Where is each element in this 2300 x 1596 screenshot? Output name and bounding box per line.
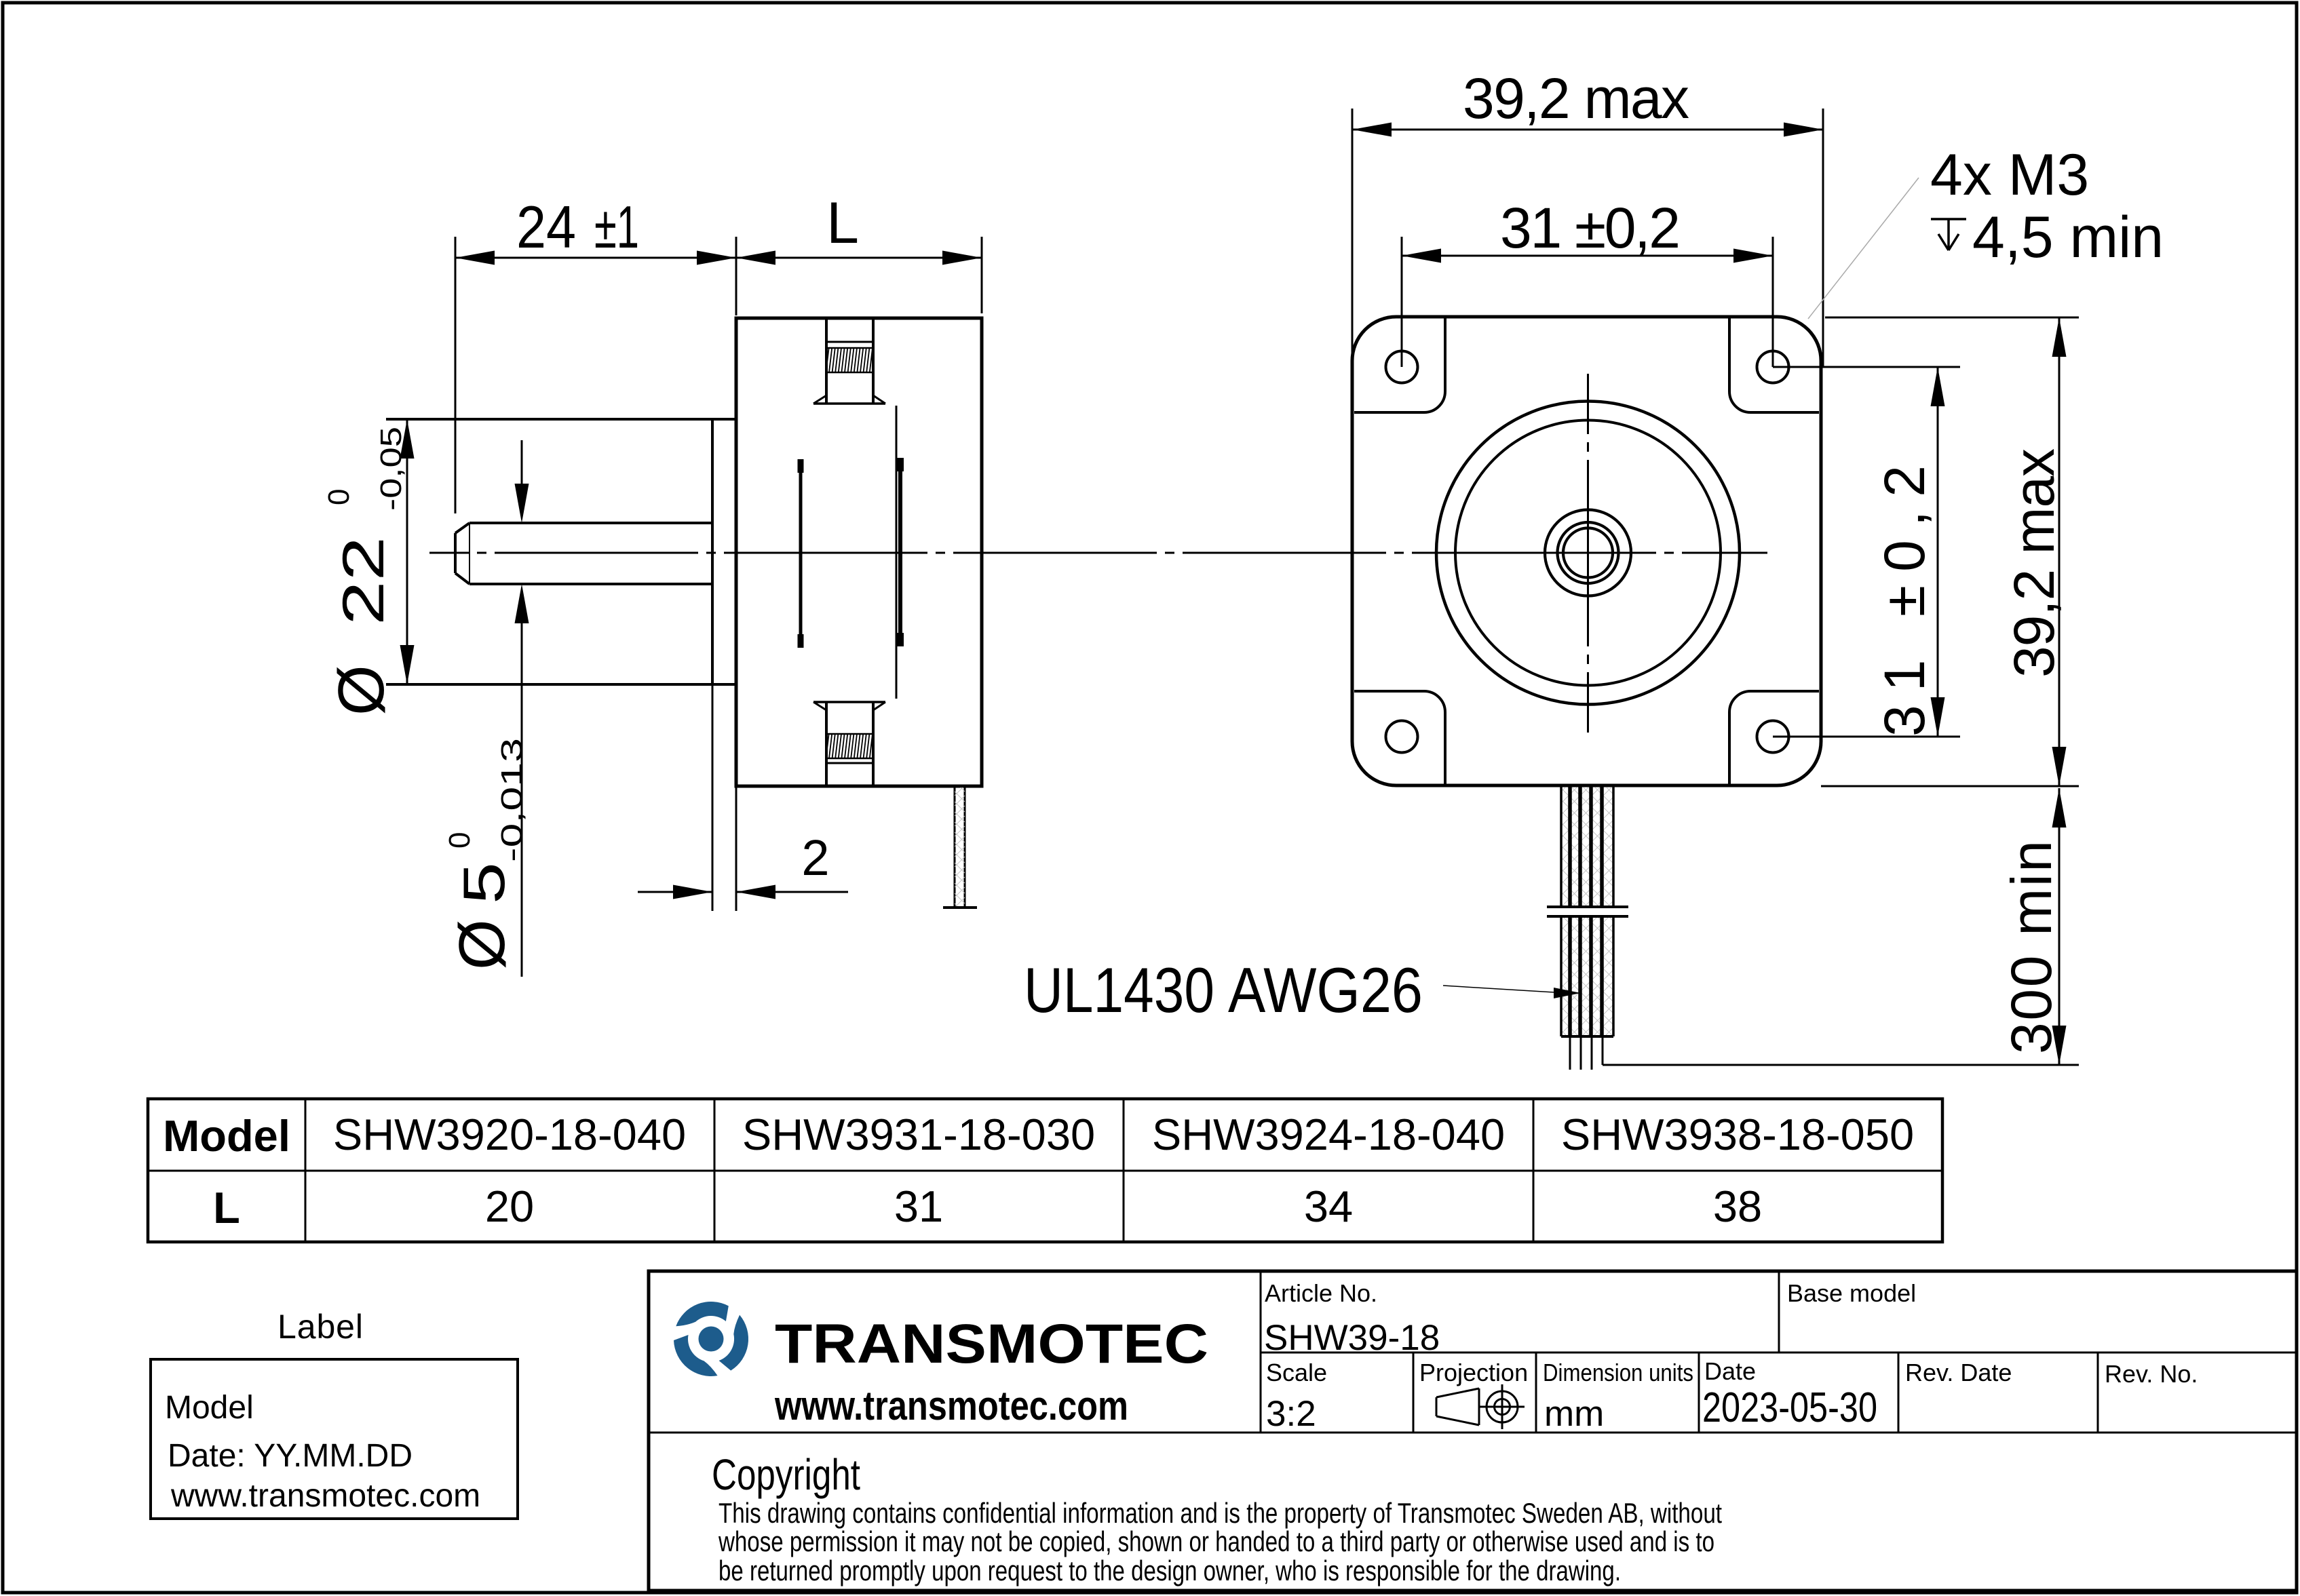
svg-text:22: 22 <box>331 537 396 625</box>
svg-text:Article No.: Article No. <box>1265 1279 1377 1307</box>
svg-text:SHW3931-18-030: SHW3931-18-030 <box>742 1110 1095 1159</box>
svg-text:3:2: 3:2 <box>1266 1394 1316 1434</box>
svg-text:SHW39-18: SHW39-18 <box>1264 1318 1440 1358</box>
svg-text:TRANSMOTEC: TRANSMOTEC <box>775 1313 1208 1375</box>
svg-text:Projection: Projection <box>1419 1359 1528 1386</box>
svg-text:34: 34 <box>1304 1182 1353 1231</box>
svg-text:SHW3924-18-040: SHW3924-18-040 <box>1152 1110 1505 1159</box>
svg-text:2: 2 <box>801 830 829 886</box>
svg-text:L: L <box>213 1183 240 1232</box>
svg-text:Model: Model <box>165 1390 254 1426</box>
svg-text:Base model: Base model <box>1787 1279 1916 1307</box>
svg-text:L: L <box>826 191 859 256</box>
svg-text:4,5 min: 4,5 min <box>1972 205 2164 270</box>
svg-text:Label: Label <box>277 1308 363 1346</box>
svg-text:www.transmotec.com: www.transmotec.com <box>774 1383 1128 1428</box>
svg-text:Model: Model <box>163 1111 290 1161</box>
svg-text:20: 20 <box>485 1182 534 1231</box>
svg-text:0: 0 <box>322 489 356 505</box>
svg-text:UL1430: UL1430 <box>1024 954 1214 1026</box>
svg-text:0: 0 <box>443 832 476 849</box>
svg-text:Ø: Ø <box>446 919 518 970</box>
svg-text:Ø: Ø <box>325 665 398 716</box>
svg-text:Rev. No.: Rev. No. <box>2105 1360 2198 1388</box>
svg-text:Copyright: Copyright <box>712 1450 860 1499</box>
svg-text:-0,013: -0,013 <box>495 738 529 862</box>
svg-text:This drawing contains confiden: This drawing contains confidential infor… <box>718 1497 1722 1529</box>
svg-text:mm: mm <box>1544 1394 1604 1434</box>
svg-text:-0,05: -0,05 <box>375 427 408 511</box>
svg-text:39,2 max: 39,2 max <box>1463 66 1689 130</box>
svg-text:AWG26: AWG26 <box>1228 954 1423 1026</box>
svg-text:SHW3920-18-040: SHW3920-18-040 <box>333 1110 686 1159</box>
svg-text:SHW3938-18-050: SHW3938-18-050 <box>1561 1110 1914 1159</box>
svg-text:Rev. Date: Rev. Date <box>1905 1359 2012 1386</box>
svg-text:Date: YY.MM.DD: Date: YY.MM.DD <box>168 1438 413 1474</box>
svg-text:Date: Date <box>1704 1357 1756 1385</box>
svg-text:24: 24 <box>516 193 576 260</box>
svg-text:2023-05-30: 2023-05-30 <box>1702 1384 1877 1431</box>
svg-text:31 ±0,2: 31 ±0,2 <box>1500 196 1681 260</box>
svg-text:39,2 max: 39,2 max <box>2002 448 2066 678</box>
svg-text:±1: ±1 <box>594 193 639 260</box>
svg-text:be returned promptly upon requ: be returned promptly upon request to the… <box>718 1555 1621 1587</box>
svg-text:4x M3: 4x M3 <box>1930 142 2089 208</box>
svg-text:38: 38 <box>1713 1182 1762 1231</box>
svg-text:31: 31 <box>894 1182 943 1231</box>
svg-text:Scale: Scale <box>1266 1359 1327 1386</box>
svg-text:Dimension units: Dimension units <box>1543 1359 1693 1386</box>
svg-text:5: 5 <box>452 862 517 904</box>
svg-text:www.transmotec.com: www.transmotec.com <box>170 1478 480 1514</box>
svg-text:whose permission it may not be: whose permission it may not be copied, s… <box>718 1525 1714 1557</box>
